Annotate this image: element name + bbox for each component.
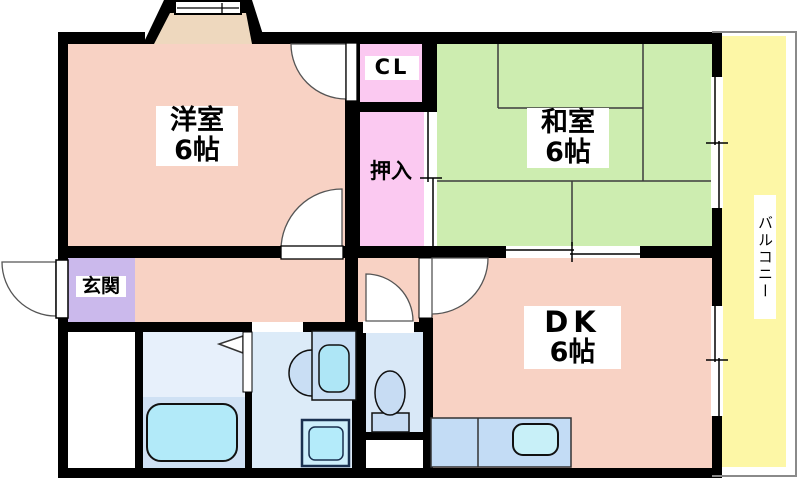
wall-mid-center: [345, 246, 508, 258]
label-western-room: 洋室 6帖: [156, 106, 238, 166]
wall-western-closet: [345, 44, 360, 258]
wall-top-left: [58, 32, 145, 44]
room-bath-unit: [142, 397, 245, 468]
label-oshiire: 押入: [362, 160, 420, 184]
wall-right: [712, 32, 722, 468]
wall-bath-washroom: [245, 322, 252, 468]
label-entrance: 玄関: [76, 276, 126, 297]
wall-top-right: [260, 32, 722, 44]
room-toilet: [366, 332, 423, 432]
wall-hall-bath: [58, 322, 245, 332]
wall-storage-bath: [135, 322, 143, 468]
floor-plan: 洋室 6帖 和室 6帖 DK 6帖 CL 押入 玄関 バルコニー: [0, 0, 800, 482]
japanese-room-name: 和室: [541, 107, 595, 138]
label-japanese-room: 和室 6帖: [527, 108, 609, 168]
room-vestibule: [358, 258, 420, 322]
wall-washroom-toilet: [352, 322, 366, 468]
wall-left-upper: [58, 32, 68, 262]
western-room-name: 洋室: [170, 105, 224, 136]
wall-toilet-dk: [423, 322, 433, 468]
western-room-size: 6帖: [156, 136, 238, 166]
wall-mid-east: [640, 246, 712, 258]
door-swing-icon: [2, 260, 68, 318]
room-hallway: [135, 258, 345, 322]
label-balcony: バルコニー: [754, 195, 776, 319]
label-dk: DK 6帖: [524, 306, 621, 369]
wall-bottom: [58, 468, 722, 478]
wall-cl-right: [422, 32, 437, 112]
dk-size: 6帖: [524, 338, 621, 368]
bay-window-icon: [143, 0, 266, 44]
dk-name: DK: [544, 305, 601, 339]
wall-under-toilet: [366, 432, 423, 440]
room-washroom: [252, 332, 352, 468]
wall-mid-west: [68, 246, 345, 258]
wall-left-lower: [58, 318, 68, 478]
japanese-room-size: 6帖: [527, 138, 609, 168]
label-closet: CL: [365, 56, 419, 80]
wall-hall-vestibule: [345, 258, 358, 332]
room-bath-washplace: [142, 332, 245, 397]
